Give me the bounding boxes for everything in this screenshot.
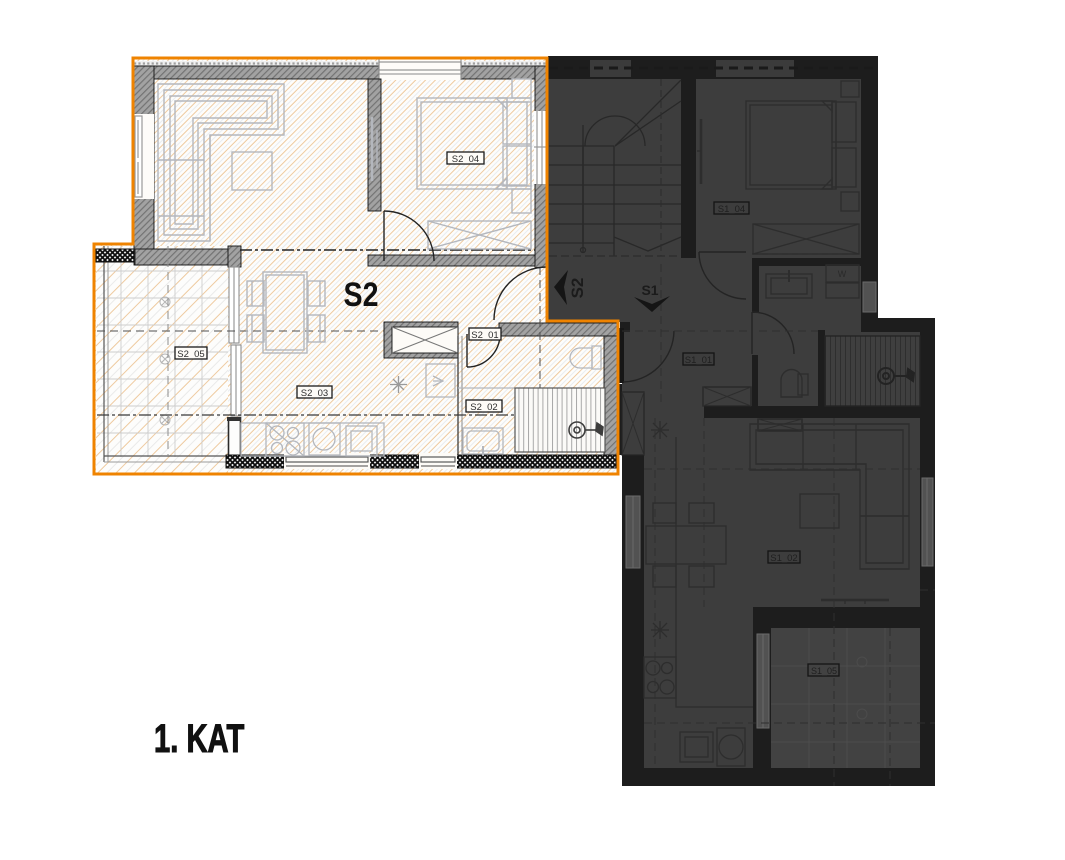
- svg-text:S2_03: S2_03: [301, 388, 328, 399]
- svg-text:S2_05: S2_05: [177, 349, 204, 360]
- svg-text:S2: S2: [568, 278, 587, 299]
- svg-text:S1_01: S1_01: [685, 355, 712, 366]
- svg-text:S2: S2: [344, 276, 379, 314]
- svg-text:S1_02: S1_02: [770, 553, 797, 564]
- svg-text:S1: S1: [641, 282, 658, 298]
- svg-text:W: W: [838, 269, 847, 279]
- svg-text:1. KAT: 1. KAT: [154, 717, 244, 762]
- svg-text:S2_02: S2_02: [470, 402, 497, 413]
- svg-text:S1_04: S1_04: [718, 204, 745, 215]
- svg-text:S2_01: S2_01: [471, 330, 498, 341]
- svg-text:S1_05: S1_05: [811, 666, 837, 676]
- svg-text:S2_04: S2_04: [452, 154, 479, 165]
